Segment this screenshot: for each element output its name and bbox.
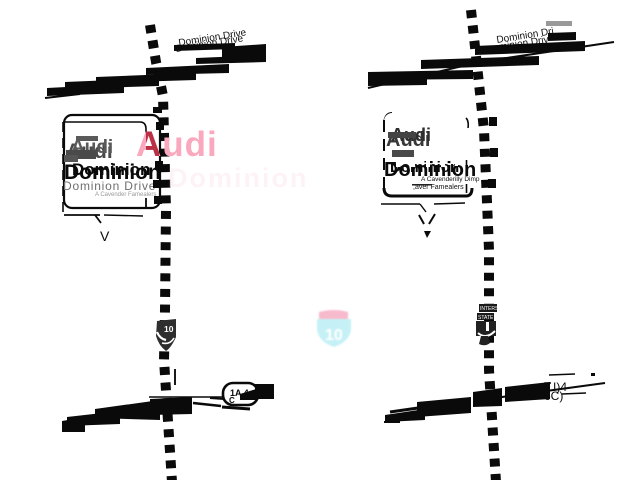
svg-text:STATE: STATE <box>478 315 494 321</box>
svg-text:C: C <box>229 396 235 405</box>
svg-text:V: V <box>100 228 110 244</box>
svg-text:Dominion: Dominion <box>168 163 308 193</box>
svg-text:A Cavenderilly Dimp: A Cavenderilly Dimp <box>421 176 480 183</box>
svg-text:INTERST: INTERST <box>480 306 501 312</box>
svg-text:6C): 6C) <box>544 389 563 403</box>
svg-text:Dominion Drive: Dominion Drive <box>63 179 156 193</box>
svg-text:10: 10 <box>325 327 343 344</box>
svg-text:Dominion: Dominion <box>390 159 459 176</box>
svg-text:10: 10 <box>164 324 174 334</box>
svg-text:A Cavender Famealers: A Cavender Famealers <box>95 192 156 198</box>
